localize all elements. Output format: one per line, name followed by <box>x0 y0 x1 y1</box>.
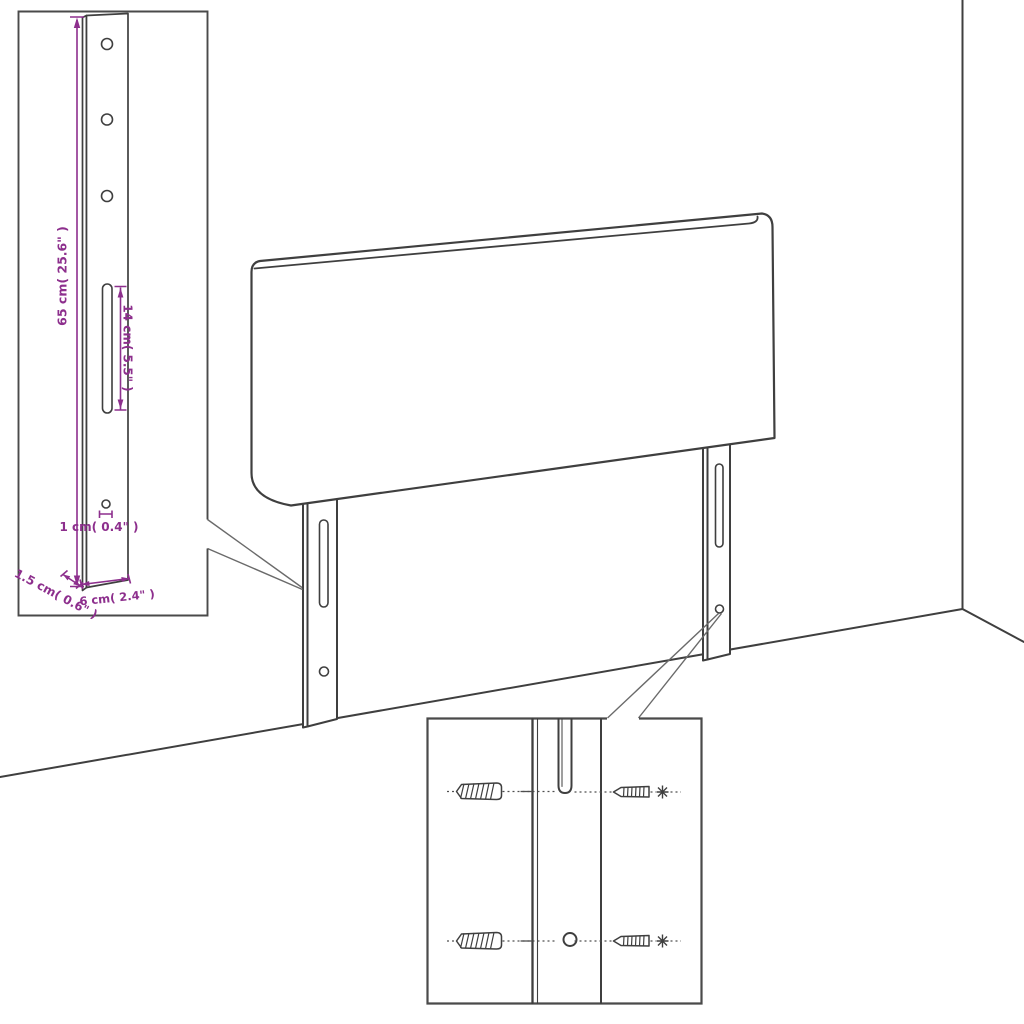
callout-line-lower <box>208 549 303 590</box>
leg-detail-inset: 65 cm( 25.6" ) 14 cm( 5.5" ) 1 cm( 0.4" … <box>12 12 207 622</box>
headboard-panel <box>252 214 775 506</box>
diagram-canvas: 65 cm( 25.6" ) 14 cm( 5.5" ) 1 cm( 0.4" … <box>0 0 1024 1024</box>
screw-head-star <box>657 786 669 799</box>
dim-leg-height: 65 cm( 25.6" ) <box>55 17 85 587</box>
headboard-outline <box>252 214 775 506</box>
mounting-detail-inset <box>428 719 702 1004</box>
left-leg-front-face <box>308 494 338 727</box>
floor-line-right <box>963 609 1024 642</box>
dim-leg-height-label: 65 cm( 25.6" ) <box>55 226 70 326</box>
dim-leg-width-label: 6 cm( 2.4" ) <box>79 587 156 609</box>
left-leg <box>303 494 337 728</box>
right-leg <box>703 435 730 661</box>
headboard-dimension-diagram: 65 cm( 25.6" ) 14 cm( 5.5" ) 1 cm( 0.4" … <box>0 0 1024 1024</box>
inset-leg-front-face <box>87 14 129 588</box>
mounting-callout-line-left <box>608 614 719 719</box>
callout-line-upper <box>208 520 303 588</box>
dim-hole-diameter-label: 1 cm( 0.4" ) <box>60 520 139 534</box>
leg-detail-callout <box>208 520 303 590</box>
dim-slot-length-label: 14 cm( 5.5" ) <box>121 304 135 391</box>
mounting-inset-border <box>428 719 702 1004</box>
mounting-callout-line-right <box>639 614 722 719</box>
